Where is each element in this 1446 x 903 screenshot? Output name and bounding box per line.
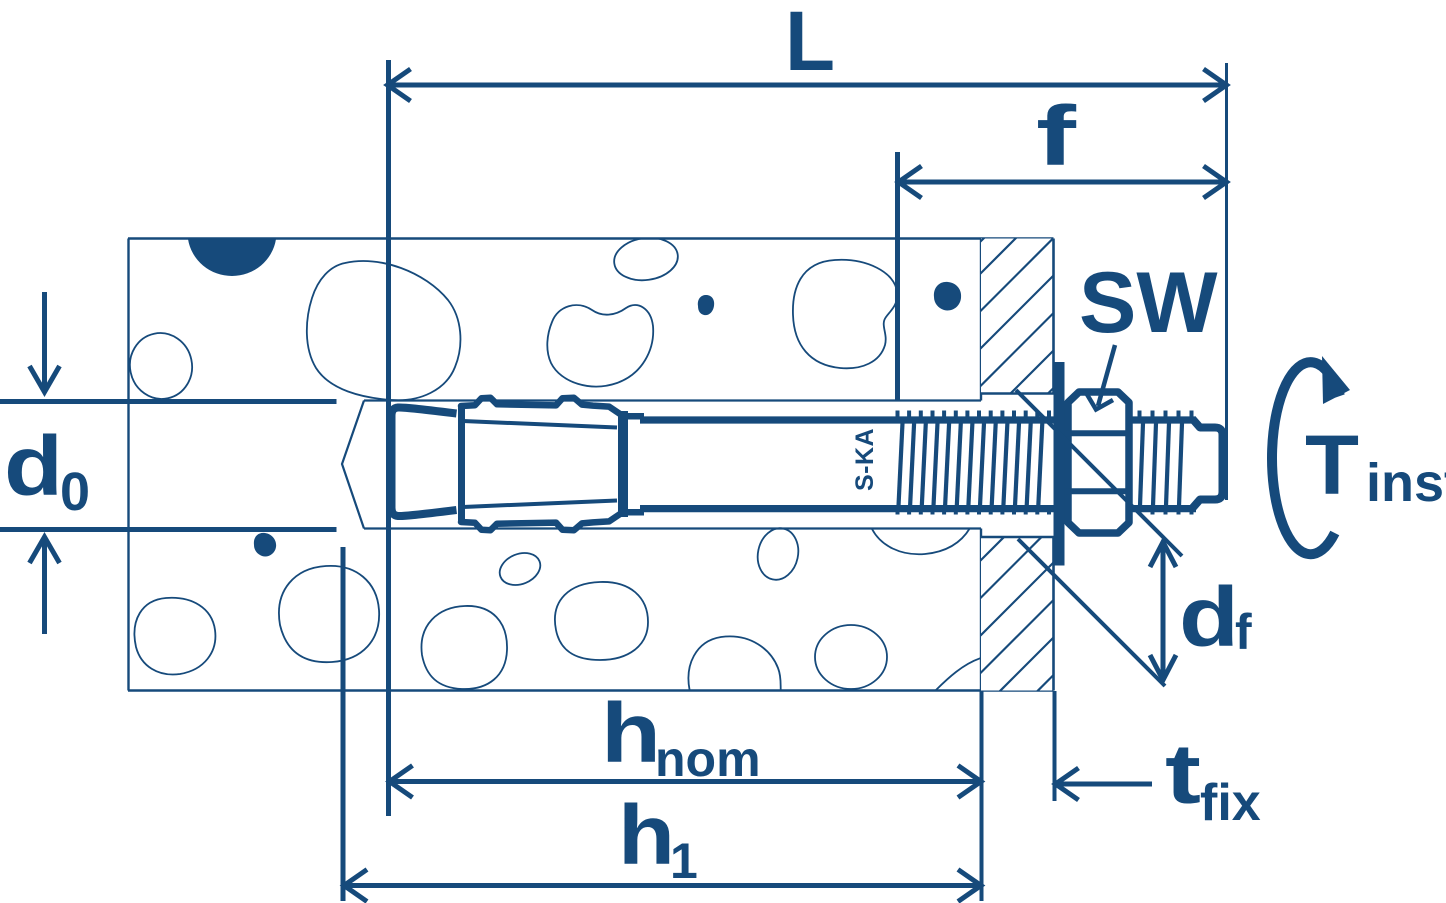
svg-text:d: d [4, 419, 63, 513]
svg-text:inst: inst [1366, 453, 1446, 513]
svg-text:f: f [1235, 604, 1252, 660]
svg-text:fix: fix [1200, 774, 1261, 832]
svg-text:S-KA: S-KA [851, 428, 879, 491]
svg-text:0: 0 [60, 462, 90, 522]
svg-text:t: t [1165, 727, 1201, 821]
svg-text:T: T [1305, 418, 1359, 512]
svg-text:nom: nom [655, 731, 761, 787]
svg-text:L: L [785, 0, 835, 88]
svg-text:h: h [618, 788, 675, 882]
svg-text:SW: SW [1079, 255, 1218, 351]
svg-text:f: f [1036, 89, 1077, 183]
svg-text:h: h [601, 686, 661, 780]
svg-text:1: 1 [670, 833, 698, 889]
svg-text:d: d [1179, 570, 1239, 664]
